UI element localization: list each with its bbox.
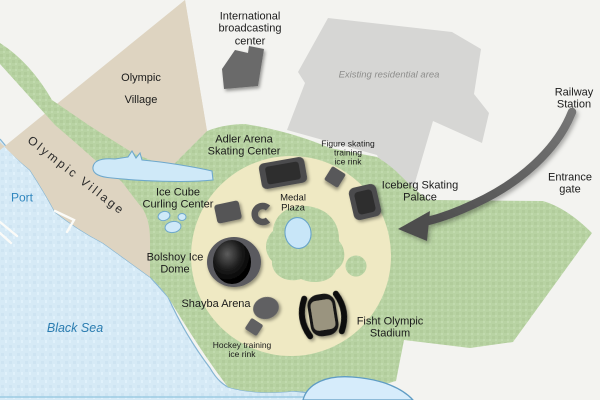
entrance-gate-label: Entrance gate [548, 172, 592, 197]
small-pond-3 [178, 214, 186, 221]
railway-station-label: Railway Station [555, 87, 594, 112]
ice-cube-label: Ice Cube Curling Center [143, 187, 214, 212]
black-sea-label: Black Sea [47, 321, 103, 335]
broadcasting-center-label: International broadcasting center [219, 11, 282, 48]
fisht-stadium-label: Fisht Olympic Stadium [357, 316, 424, 341]
inner-green-circle [346, 256, 367, 277]
adler-arena-label: Adler Arena Skating Center [208, 134, 281, 159]
port-label: Port [11, 191, 33, 204]
hockey-rink-label: Hockey training ice rink [213, 341, 272, 359]
residential-area-label: Existing residential area [339, 71, 440, 82]
medal-plaza-label: Medal Plaza [280, 194, 306, 215]
bolshoy-dome-label: Bolshoy Ice Dome [147, 252, 204, 277]
olympic-park-map: International broadcasting center Olympi… [0, 0, 600, 400]
olympic-village-area-label: Olympic Village [121, 67, 161, 111]
figure-skating-rink-label: Figure skating training ice rink [321, 139, 374, 166]
shayba-arena-label: Shayba Arena [181, 298, 250, 310]
bolshoy-dome-shape [207, 237, 261, 287]
iceberg-palace-label: Iceberg Skating Palace [382, 180, 458, 205]
